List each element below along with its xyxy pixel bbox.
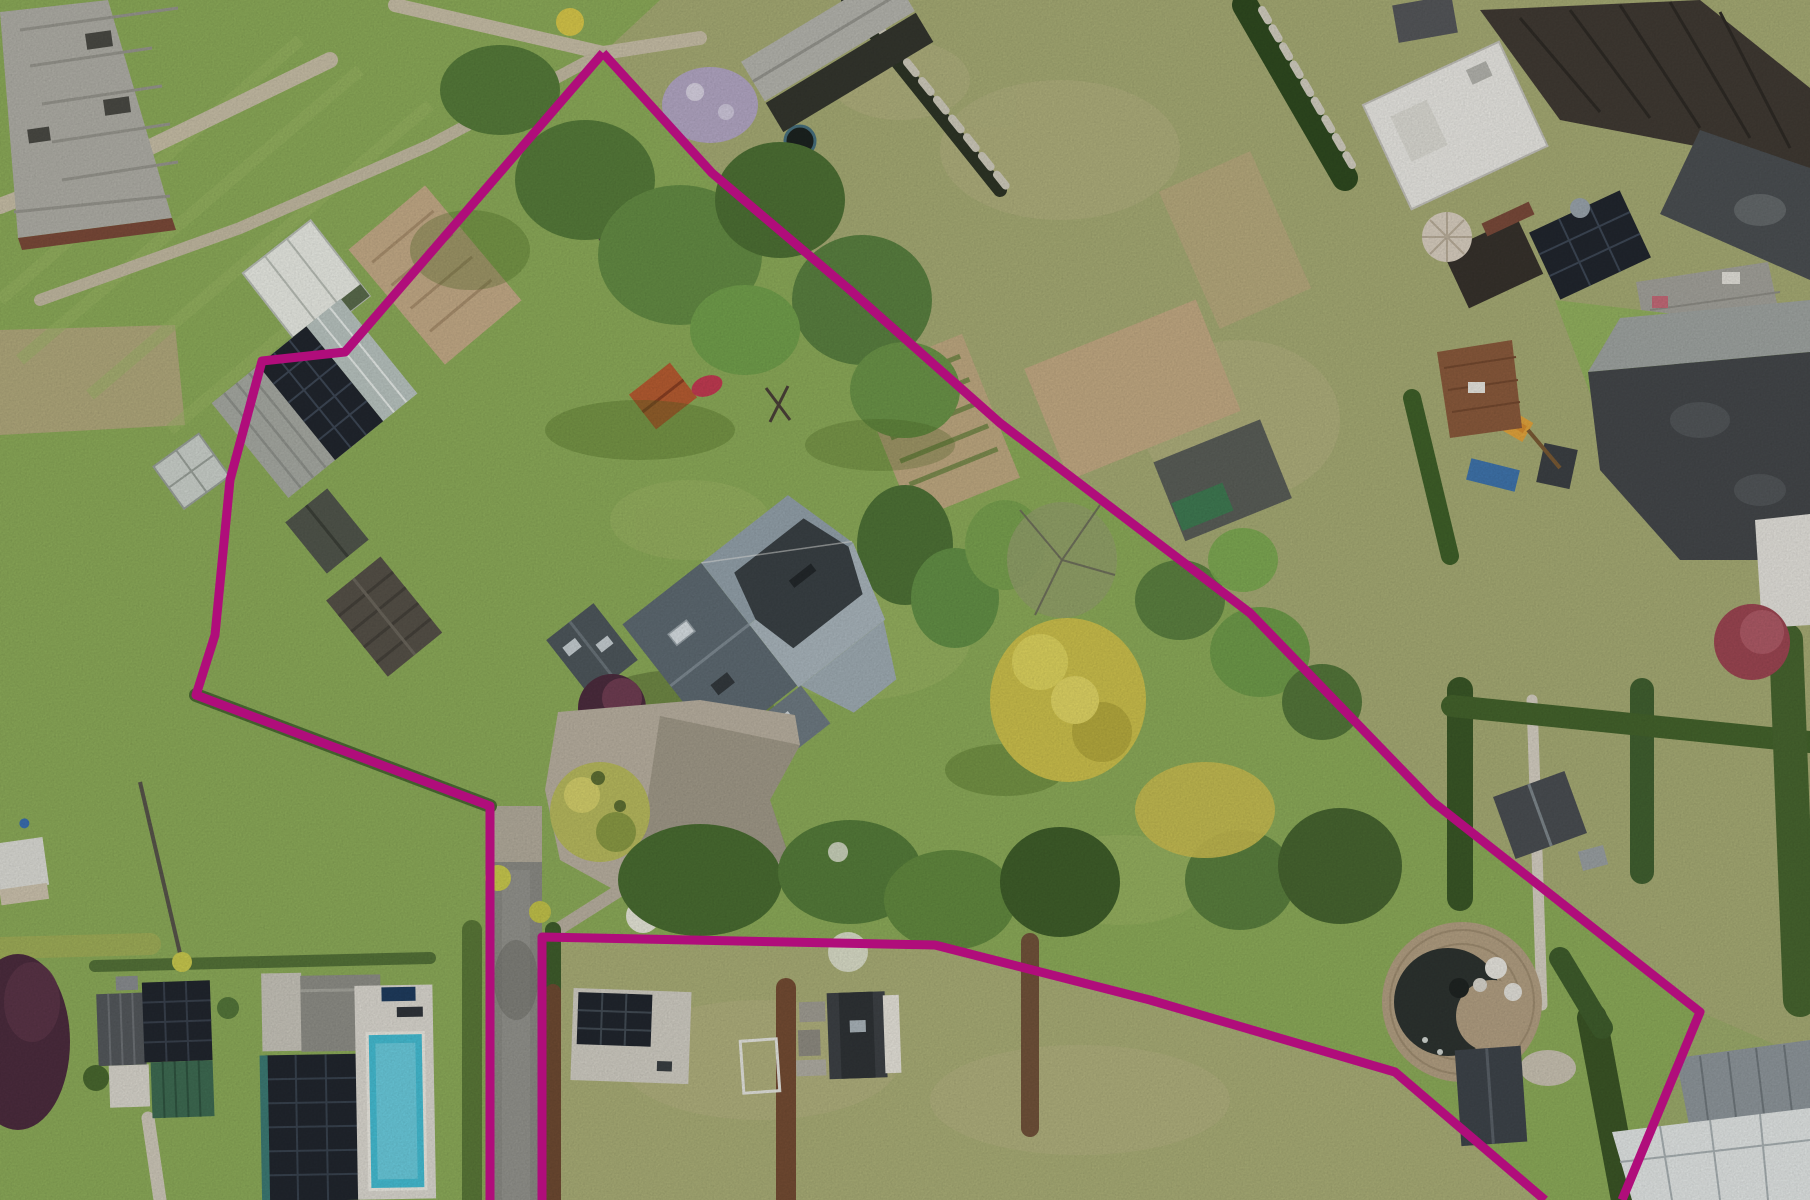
photo-grain — [0, 0, 1810, 1200]
aerial-photo — [0, 0, 1810, 1200]
